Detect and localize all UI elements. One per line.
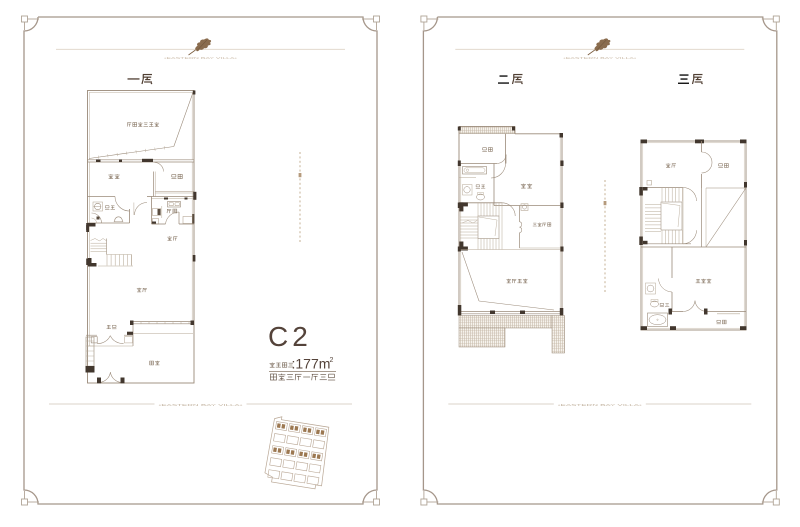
svg-text:•EASTERN BAY VILLA•: •EASTERN BAY VILLA• <box>159 403 243 407</box>
svg-text:2: 2 <box>330 357 334 364</box>
svg-text:•EASTERN BAY VILLA•: •EASTERN BAY VILLA• <box>558 403 642 407</box>
svg-text:•EASTERN BAY VILLA•: •EASTERN BAY VILLA• <box>164 56 237 60</box>
svg-text:•EASTERN BAY VILLA•: •EASTERN BAY VILLA• <box>563 56 636 60</box>
svg-text:C2: C2 <box>268 321 312 352</box>
svg-text::177m: :177m <box>292 356 331 372</box>
